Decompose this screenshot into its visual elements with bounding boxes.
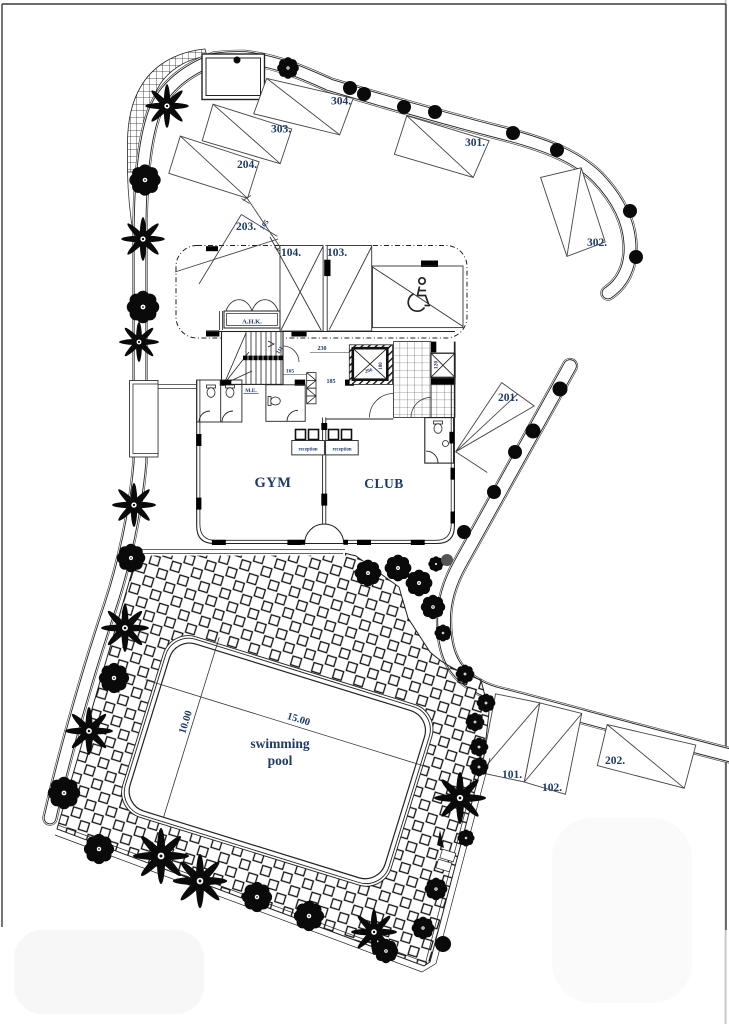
svg-text:104.: 104. <box>281 247 301 259</box>
svg-text:GYM: GYM <box>255 475 292 491</box>
svg-text:swimming: swimming <box>250 736 310 751</box>
svg-text:103.: 103. <box>327 247 347 259</box>
svg-text:120: 120 <box>434 361 440 370</box>
svg-text:230: 230 <box>318 346 327 352</box>
svg-text:204.: 204. <box>237 159 257 171</box>
svg-text:pool: pool <box>268 753 293 768</box>
svg-text:303.: 303. <box>271 124 291 136</box>
svg-text:180: 180 <box>379 362 384 370</box>
svg-text:201.: 201. <box>498 392 518 404</box>
svg-text:202.: 202. <box>605 755 625 767</box>
svg-text:102.: 102. <box>542 782 562 794</box>
svg-text:203.: 203. <box>236 221 256 233</box>
svg-text:185: 185 <box>327 379 336 385</box>
svg-text:304.: 304. <box>331 96 351 108</box>
svg-text:CLUB: CLUB <box>364 476 404 491</box>
svg-text:reception: reception <box>332 448 351 453</box>
svg-text:reception: reception <box>298 448 317 453</box>
svg-text:A.H.K.: A.H.K. <box>242 319 262 326</box>
svg-text:301.: 301. <box>465 137 485 149</box>
svg-text:165: 165 <box>286 369 295 375</box>
svg-text:302.: 302. <box>587 237 607 249</box>
svg-text:101.: 101. <box>502 769 522 781</box>
